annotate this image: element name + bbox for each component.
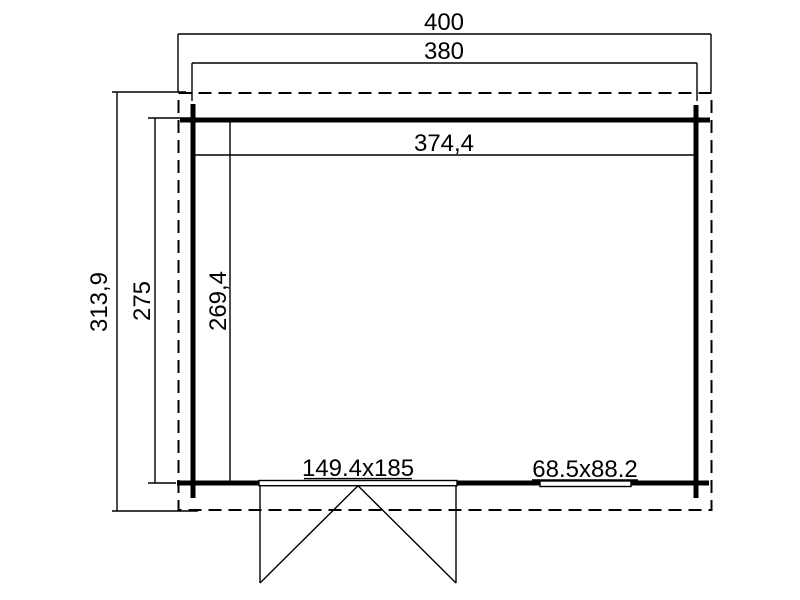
label-overall-depth: 313,9 [86,272,113,332]
label-wall-width: 380 [424,38,464,65]
floor-plan-drawing: 400 380 374,4 313,9 275 269,4 149.4x185 … [0,0,800,600]
label-interior-depth: 269,4 [205,271,232,331]
label-window-size: 68.5x88.2 [532,456,637,483]
label-interior-width: 374,4 [414,130,474,157]
label-overall-width: 400 [424,9,464,36]
label-door-size: 149.4x185 [302,455,414,482]
floor-plan-canvas: 400 380 374,4 313,9 275 269,4 149.4x185 … [0,0,800,600]
label-wall-depth: 275 [129,281,156,321]
